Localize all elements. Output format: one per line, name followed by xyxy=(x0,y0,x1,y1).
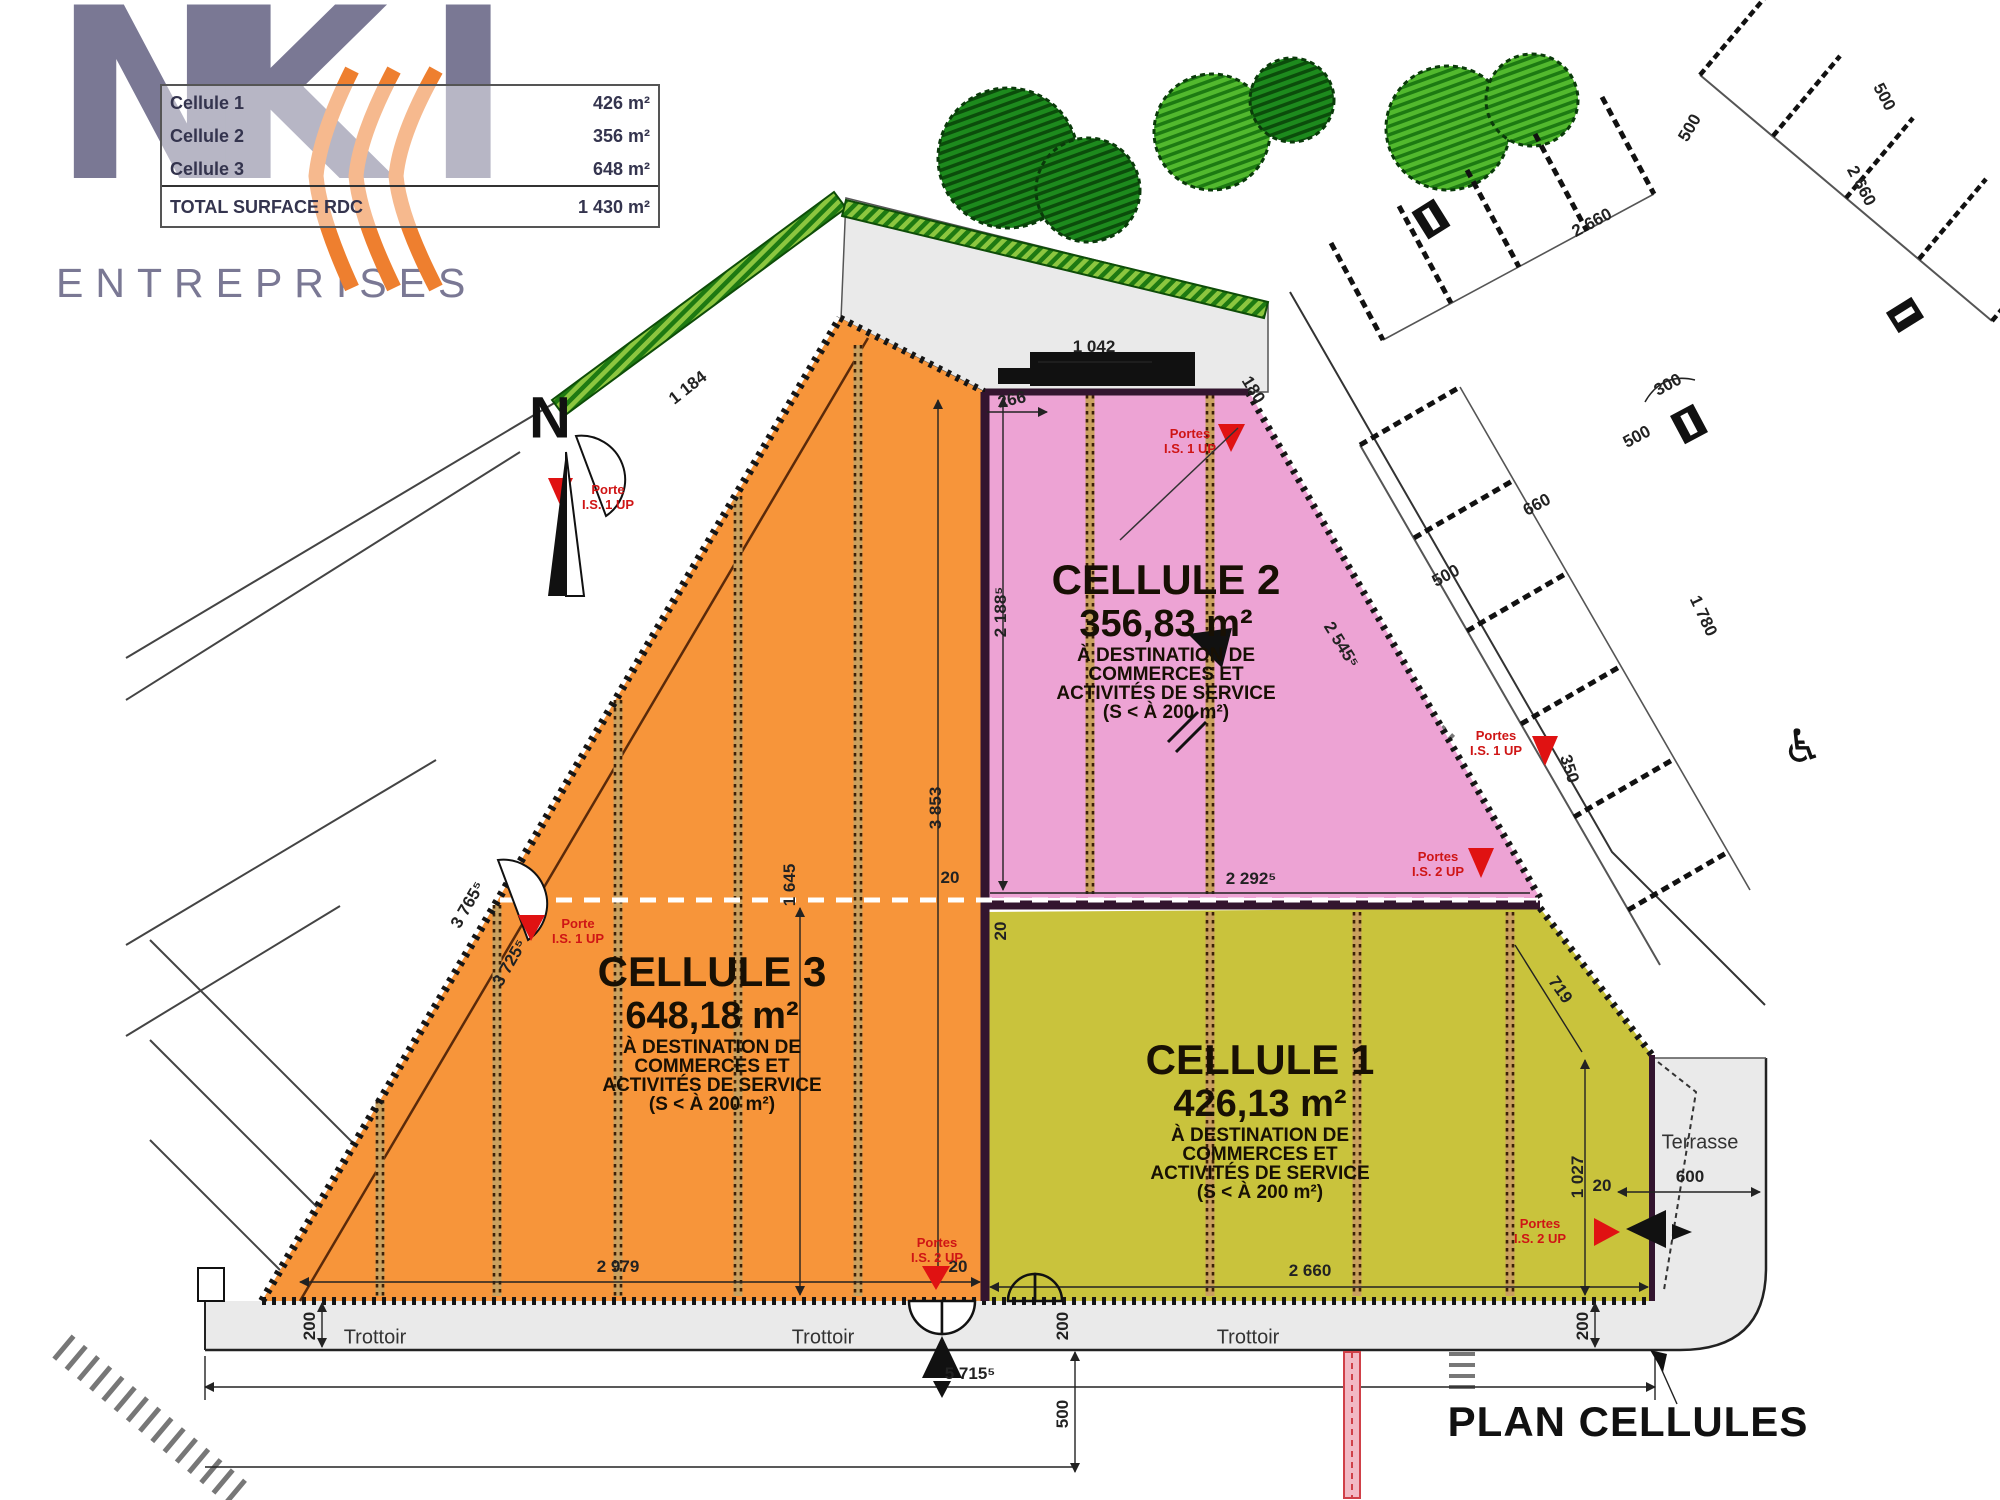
row-value: 426 m² xyxy=(593,93,650,114)
cell-destination: COMMERCES ET xyxy=(1052,665,1281,684)
door-label: PortesI.S. 1 UP xyxy=(1164,426,1216,456)
dim-5715: 5 715⁵ xyxy=(945,1364,996,1384)
door-label: PortesI.S. 1 UP xyxy=(1470,728,1522,758)
north-arrow-icon xyxy=(548,452,584,596)
cell-destination: ACTIVITÉS DE SERVICE xyxy=(1146,1164,1375,1183)
cell-destination: (S < À 200 m²) xyxy=(1052,703,1281,722)
utility-boxes xyxy=(1411,199,1924,445)
dim-200: 200 xyxy=(300,1312,320,1340)
door-label: PortesI.S. 2 UP xyxy=(911,1235,963,1265)
table-row: Cellule 3 648 m² xyxy=(162,152,658,185)
cell-destination: ACTIVITÉS DE SERVICE xyxy=(1052,684,1281,703)
cellule1-text: CELLULE 1 426,13 m² À DESTINATION DE COM… xyxy=(1146,1038,1375,1202)
red-utility-strip xyxy=(1344,1352,1360,1498)
cellule2-text: CELLULE 2 356,83 m² À DESTINATION DE COM… xyxy=(1052,558,1281,722)
row-label: Cellule 1 xyxy=(170,93,244,114)
plan-title: PLAN CELLULES xyxy=(1448,1398,1809,1446)
cell-destination: À DESTINATION DE xyxy=(598,1038,827,1057)
dim-20: 20 xyxy=(941,868,960,888)
site-plan-page: ♿ N K I ENTREPRISES Cellule 1 426 m² Cel… xyxy=(0,0,2000,1500)
dim-3853: 3 853 xyxy=(926,787,946,830)
dim-2292: 2 292⁵ xyxy=(1226,869,1277,889)
cell-title: CELLULE 1 xyxy=(1146,1038,1375,1082)
row-label: Cellule 2 xyxy=(170,126,244,147)
trottoir-label: Trottoir xyxy=(1217,1327,1280,1350)
trottoir-label: Trottoir xyxy=(344,1327,407,1350)
cell-title: CELLULE 2 xyxy=(1052,558,1281,602)
table-row: Cellule 1 426 m² xyxy=(162,86,658,119)
terrasse-label: Terrasse xyxy=(1662,1132,1739,1155)
dim-200: 200 xyxy=(1053,1312,1073,1340)
dim-20: 20 xyxy=(991,922,1011,941)
cell-area: 356,83 m² xyxy=(1052,602,1281,646)
dim-500: 500 xyxy=(1053,1400,1073,1428)
door-label: PortesI.S. 2 UP xyxy=(1514,1216,1566,1246)
total-label: TOTAL SURFACE RDC xyxy=(170,197,363,218)
wheelchair-icon: ♿ xyxy=(1782,719,1823,773)
cell-destination: COMMERCES ET xyxy=(598,1057,827,1076)
cell-destination: (S < À 200 m²) xyxy=(1146,1183,1375,1202)
table-total-row: TOTAL SURFACE RDC 1 430 m² xyxy=(162,185,658,226)
dim-2660: 2 660 xyxy=(1289,1261,1332,1281)
door-label: PortesI.S. 2 UP xyxy=(1412,849,1464,879)
row-value: 356 m² xyxy=(593,126,650,147)
cell-title: CELLULE 3 xyxy=(598,950,827,994)
cell-destination: À DESTINATION DE xyxy=(1052,646,1281,665)
dim-2979: 2 979 xyxy=(597,1257,640,1277)
cell-destination: ACTIVITÉS DE SERVICE xyxy=(598,1076,827,1095)
cell-area: 648,18 m² xyxy=(598,994,827,1038)
dim-1042: 1 042 xyxy=(1073,337,1116,357)
dim-1027: 1 027 xyxy=(1568,1156,1588,1199)
surface-table: Cellule 1 426 m² Cellule 2 356 m² Cellul… xyxy=(160,84,660,228)
dim-2188: 2 188⁵ xyxy=(991,587,1011,638)
dim-1645: 1 645 xyxy=(780,864,800,907)
cell-destination: À DESTINATION DE xyxy=(1146,1126,1375,1145)
cell-area: 426,13 m² xyxy=(1146,1082,1375,1126)
dim-200: 200 xyxy=(1573,1312,1593,1340)
north-label: N xyxy=(529,385,571,452)
row-label: Cellule 3 xyxy=(170,159,244,180)
trottoir-label: Trottoir xyxy=(792,1327,855,1350)
dim-600: 600 xyxy=(1676,1167,1704,1187)
trees xyxy=(938,54,1578,242)
door-label: PorteI.S. 1 UP xyxy=(552,916,604,946)
cell-destination: (S < À 200 m²) xyxy=(598,1095,827,1114)
dim-20: 20 xyxy=(1593,1176,1612,1196)
table-row: Cellule 2 356 m² xyxy=(162,119,658,152)
row-value: 648 m² xyxy=(593,159,650,180)
cellule3-text: CELLULE 3 648,18 m² À DESTINATION DE COM… xyxy=(598,950,827,1114)
total-value: 1 430 m² xyxy=(578,197,650,218)
door-label: PorteI.S. 1 UP xyxy=(582,482,634,512)
plan-title-leader-arrow xyxy=(1650,1350,1667,1372)
cell-destination: COMMERCES ET xyxy=(1146,1145,1375,1164)
parking-northeast-corner xyxy=(1700,0,2000,321)
